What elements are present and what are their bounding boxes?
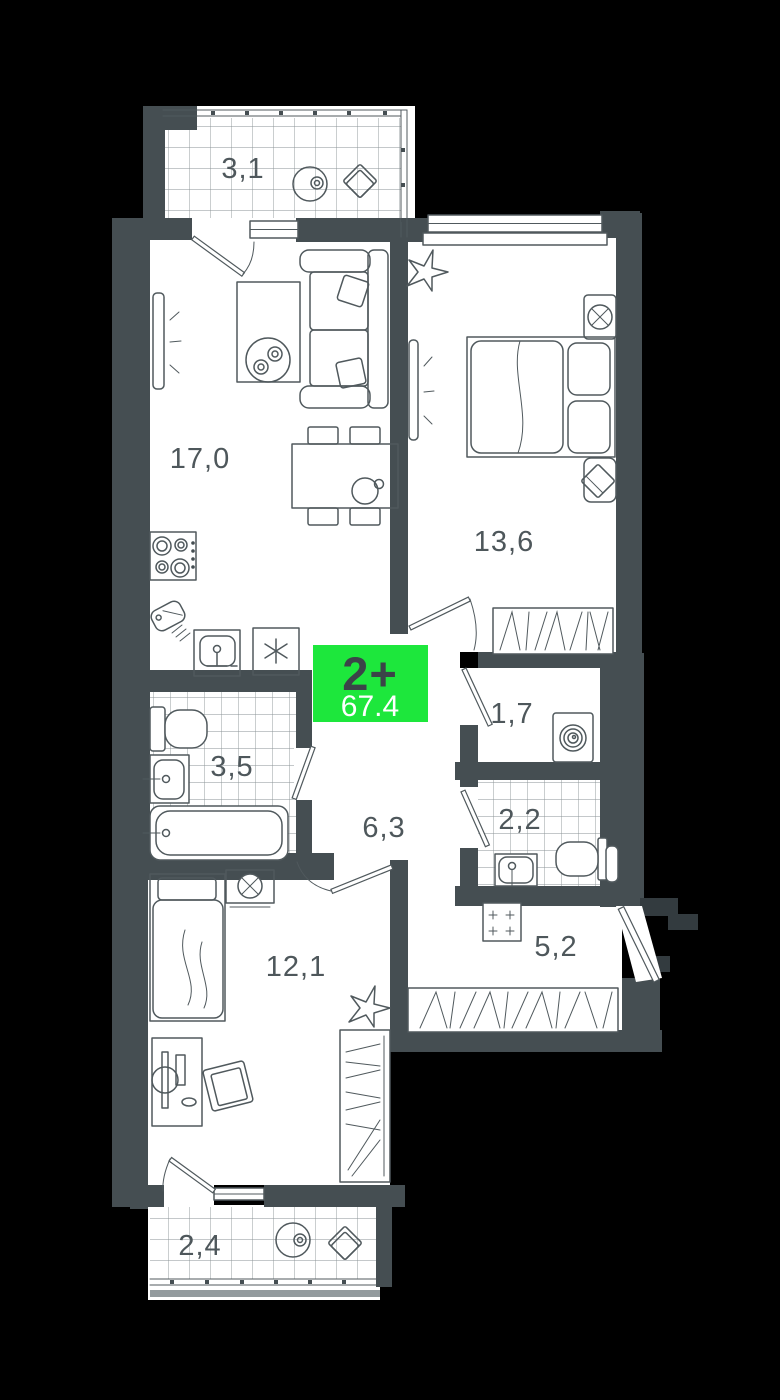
radiator-icon	[606, 846, 618, 882]
label-bathroom: 3,5	[210, 751, 253, 783]
apartment-floorplan[interactable]: 3,1 17,0 13,6 1,7 3,5 6,3 2,2 5,2 12,1 2…	[0, 0, 780, 1400]
label-wc: 2,2	[498, 804, 541, 836]
bathtub-icon	[143, 806, 288, 860]
exterior-step	[668, 914, 698, 930]
label-balcony-bottom: 2,4	[178, 1230, 221, 1262]
label-balcony-top: 3,1	[221, 153, 264, 185]
label-corridor: 5,2	[534, 931, 577, 963]
label-hallway: 6,3	[362, 812, 405, 844]
bedroom-window-sill	[423, 233, 607, 245]
wc-sink-icon	[495, 854, 537, 886]
label-bedroom-main: 13,6	[474, 526, 534, 558]
wardrobe-main-icon	[493, 608, 613, 654]
label-living-kitchen: 17,0	[170, 443, 230, 475]
exterior-step	[640, 898, 678, 916]
label-bedroom-second: 12,1	[266, 951, 326, 983]
area-badge: 2+ 67.4	[313, 645, 428, 723]
toilet-icon	[150, 707, 207, 751]
badge-total-area: 67.4	[341, 690, 399, 723]
label-dressing: 1,7	[490, 698, 533, 730]
wardrobe-second-icon	[340, 1030, 390, 1182]
hall-corridor-opening	[408, 886, 455, 906]
floor-bedroom-main	[408, 237, 616, 652]
balcony-bottom-ledge	[150, 1290, 380, 1297]
floorplan-page: 3,1 17,0 13,6 1,7 3,5 6,3 2,2 5,2 12,1 2…	[0, 0, 780, 1400]
corridor-wardrobe-icon	[408, 988, 618, 1032]
electrical-panel-icon	[483, 903, 521, 941]
bath-sink-icon	[143, 755, 189, 803]
